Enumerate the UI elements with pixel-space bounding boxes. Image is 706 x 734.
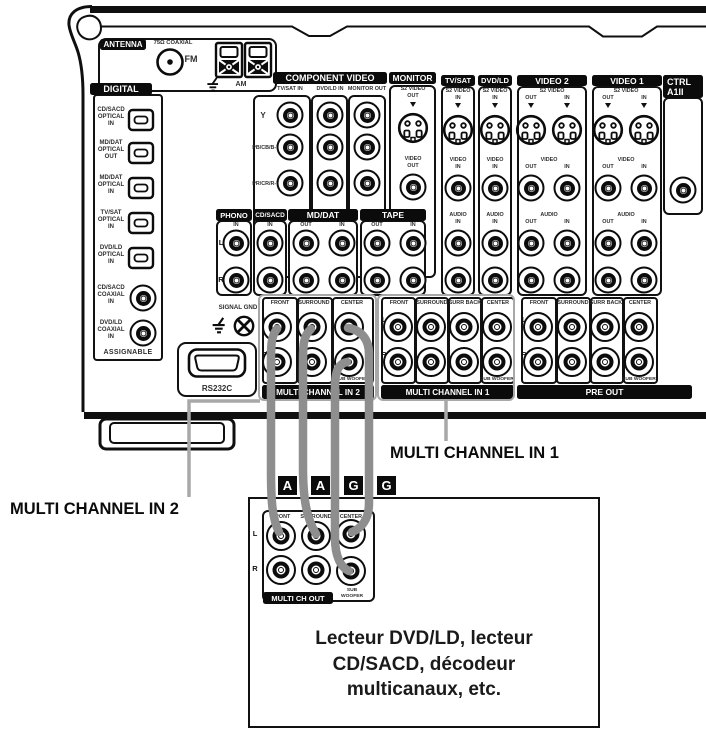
mddat-out-label: OUT <box>300 222 311 229</box>
component-col-header: DVD/LD IN <box>317 86 344 93</box>
dvdld-title: DVD/LD <box>478 75 512 86</box>
s-video-jack-video1-out <box>592 114 624 146</box>
preout-front-label: FRONT <box>530 300 549 307</box>
monitor-video-out-label: OUT <box>407 163 418 170</box>
rear-panel-connection-diagram: ANTENNA 75Ω COAXIAL FM AM DIGITAL CD/SAC… <box>0 0 706 734</box>
ground-icon <box>206 77 221 92</box>
rca-jack-preout-front-l <box>523 312 553 342</box>
video1-s2-label: S2 VIDEO <box>614 88 639 95</box>
video2-video-label: VIDEO <box>541 157 558 164</box>
s-video-jack-monitor-out <box>397 112 429 144</box>
rca-jack-dvdld-audio-l <box>482 230 509 257</box>
optical-jack-tvsat-in <box>127 176 155 200</box>
antenna-title: ANTENNA <box>100 39 146 50</box>
rca-jack-dvdld-audio-r <box>482 267 509 294</box>
dvdld-video-label: VIDEO <box>487 157 504 164</box>
rca-jack-video2-audio-out-r <box>518 267 545 294</box>
rca-jack-component-tvsat-y <box>277 102 304 129</box>
mc2-highlight-box <box>258 294 377 401</box>
rca-jack-phono-l <box>223 230 250 257</box>
tvsat-s2-label: S2 VIDEO <box>446 88 471 95</box>
digital-item-label: COAXIAL <box>98 327 125 334</box>
rca-jack-component-monitor-pr <box>354 170 381 197</box>
am-antenna-terminal-right <box>244 42 272 78</box>
rca-jack-cdsacd-r <box>257 267 284 294</box>
digital-item-label: MD/DAT <box>100 140 123 147</box>
video2-video-in-label: IN <box>564 164 569 171</box>
cdsacd-in-label: IN <box>267 222 272 229</box>
monitor-title: MONITOR <box>389 72 436 84</box>
am-label: AM <box>236 81 247 88</box>
preout-title: PRE OUT <box>517 385 692 399</box>
rca-jack-component-monitor-y <box>354 102 381 129</box>
digital-item-label: IN <box>108 189 114 196</box>
rca-jack-tape-in-r <box>400 267 427 294</box>
phono-title: PHONO <box>216 209 252 221</box>
dvdld-s2-in-label: IN <box>492 95 497 102</box>
device-woofer-label: WOOFER <box>341 593 363 600</box>
rca-jack-video1-video-in <box>631 175 658 202</box>
rca-jack-video1-audio-in-l <box>631 230 658 257</box>
mddat-in-label: IN <box>339 222 344 229</box>
row-label-r: R <box>252 564 257 573</box>
s-video-jack-video2-in <box>551 114 583 146</box>
device-caption-line2: CD/SACD, décodeur <box>252 652 596 678</box>
s-video-jack-dvdld-in <box>479 114 511 146</box>
rca-jack-device-center <box>336 519 366 549</box>
rca-jack-video2-video-in <box>554 175 581 202</box>
digital-item-label: IN <box>108 121 114 128</box>
rca-jack-digital-cdsacd-coaxial <box>130 285 157 312</box>
digital-item-label: DVD/LD <box>100 245 122 252</box>
device-caption-line1: Lecteur DVD/LD, lecteur <box>252 626 596 652</box>
dvdld-video-in-label: IN <box>492 164 497 171</box>
fm-label: FM <box>185 56 198 63</box>
rca-jack-preout-surrback-r <box>590 347 620 377</box>
row-label-l: L <box>253 529 258 538</box>
component-video-title: COMPONENT VIDEO <box>273 72 387 84</box>
digital-item-label: OPTICAL <box>98 217 124 224</box>
preout-subwoofer-label: SUB WOOFER <box>622 376 656 383</box>
video2-s2-in-label: IN <box>564 95 569 102</box>
monitor-video-label: VIDEO <box>405 156 422 163</box>
rca-jack-mddat-in-r <box>329 267 356 294</box>
rs232c-label: RS232C <box>202 385 232 392</box>
digital-item-label: DVD/LD <box>100 320 122 327</box>
down-arrow-icon <box>492 103 498 108</box>
cable-badge-a2: A <box>311 476 330 495</box>
digital-item-label: CD/SACD <box>97 285 124 292</box>
down-arrow-icon <box>641 103 647 108</box>
rca-jack-component-dvdld-pr <box>317 170 344 197</box>
rca-jack-component-dvdld-y <box>317 102 344 129</box>
device-caption-line3: multicanaux, etc. <box>252 677 596 703</box>
rca-jack-device-surround-r <box>301 555 331 585</box>
fm-antenna-jack <box>155 47 185 77</box>
rca-jack-tape-out-r <box>364 267 391 294</box>
signal-gnd-label: SIGNAL GND <box>219 304 258 311</box>
cable-badge-g2: G <box>377 476 396 495</box>
ground-screw-icon <box>233 315 256 338</box>
rca-jack-tvsat-video-in <box>445 175 472 202</box>
digital-item-label: IN <box>108 334 114 341</box>
mc1-highlight-box <box>377 294 515 401</box>
digital-item-label: IN <box>108 224 114 231</box>
am-antenna-terminal-left <box>215 42 243 78</box>
video2-audio-in-label: IN <box>564 219 569 226</box>
cable-badge-a1: A <box>278 476 297 495</box>
tvsat-audio-in-label: IN <box>455 219 460 226</box>
phono-in-label: IN <box>233 222 238 229</box>
digital-title: DIGITAL <box>90 83 152 95</box>
video1-audio-label: AUDIO <box>617 212 634 219</box>
assignable-label: ASSIGNABLE <box>104 349 153 356</box>
s-video-jack-video2-out <box>515 114 547 146</box>
rca-jack-mddat-out-l <box>293 230 320 257</box>
tvsat-video-in-label: IN <box>455 164 460 171</box>
rca-jack-video2-video-out <box>518 175 545 202</box>
down-arrow-icon <box>528 103 534 108</box>
down-arrow-icon <box>605 103 611 108</box>
tape-in-label: IN <box>410 222 415 229</box>
cdsacd-title: CD/SACD <box>253 209 287 221</box>
rca-jack-preout-center <box>624 312 654 342</box>
optical-jack-cdsacd-in <box>127 108 155 132</box>
s-video-jack-video1-in <box>628 114 660 146</box>
dvdld-audio-label: AUDIO <box>486 212 503 219</box>
video1-audio-out-label: OUT <box>602 219 613 226</box>
rca-jack-device-surround-l <box>301 521 331 551</box>
digital-item-label: OPTICAL <box>98 182 124 189</box>
rca-jack-dvdld-video-in <box>482 175 509 202</box>
digital-item-label: OUT <box>105 154 118 161</box>
rca-jack-component-tvsat-pr <box>277 170 304 197</box>
device-multi-ch-out-title: MULTI CH OUT <box>263 592 333 604</box>
rca-jack-mddat-in-l <box>329 230 356 257</box>
video1-audio-in-label: IN <box>641 219 646 226</box>
rca-jack-preout-front-r <box>523 347 553 377</box>
ctrl-a1-title: CTRL A1II <box>663 75 703 98</box>
video1-s2-out-label: OUT <box>602 95 613 102</box>
video2-s2-out-label: OUT <box>525 95 536 102</box>
rca-jack-monitor-video-out <box>400 174 427 201</box>
ctrl-line1: CTRL <box>667 77 691 87</box>
digital-item-label: COAXIAL <box>98 292 125 299</box>
rca-jack-phono-r <box>223 267 250 294</box>
rca-jack-tvsat-audio-l <box>445 230 472 257</box>
component-col-header: TV/SAT IN <box>277 86 303 93</box>
antenna-coaxial-label: 75Ω COAXIAL <box>154 40 193 47</box>
video2-video-out-label: OUT <box>525 164 536 171</box>
digital-item-label: OPTICAL <box>98 114 124 121</box>
cable-badge-g1: G <box>344 476 363 495</box>
preout-surround-label: SURROUND <box>557 300 588 307</box>
video2-audio-label: AUDIO <box>540 212 557 219</box>
video2-audio-out-label: OUT <box>525 219 536 226</box>
rca-jack-preout-surround-r <box>557 347 587 377</box>
video1-title: VIDEO 1 <box>592 75 662 86</box>
rca-jack-video1-audio-out-l <box>595 230 622 257</box>
device-caption: Lecteur DVD/LD, lecteur CD/SACD, décodeu… <box>252 626 596 703</box>
device-front-label: FRONT <box>272 514 291 521</box>
rca-jack-component-dvdld-pb <box>317 134 344 161</box>
dvdld-s2-label: S2 VIDEO <box>483 88 508 95</box>
tvsat-title: TV/SAT <box>441 75 475 86</box>
rca-jack-preout-surround-l <box>557 312 587 342</box>
digital-item-label: IN <box>108 259 114 266</box>
mddat-title: MD/DAT <box>288 209 358 221</box>
optical-jack-mddat-out <box>127 141 155 165</box>
rca-jack-device-front-r <box>266 555 296 585</box>
down-arrow-icon <box>564 103 570 108</box>
preout-center-label: CENTER <box>629 300 651 307</box>
monitor-s2-label: S2 VIDEO <box>401 86 426 93</box>
video1-video-in-label: IN <box>641 164 646 171</box>
rca-jack-cdsacd-l <box>257 230 284 257</box>
digital-item-label: TV/SAT <box>101 210 122 217</box>
preout-surrback-label: SURR BACK <box>590 300 622 307</box>
optical-jack-dvdld-in <box>127 246 155 270</box>
rca-jack-device-front-l <box>266 521 296 551</box>
down-arrow-icon <box>455 103 461 108</box>
monitor-s2-out-label: OUT <box>407 93 418 100</box>
digital-item-label: OPTICAL <box>98 147 124 154</box>
component-col-header: MONITOR OUT <box>348 86 386 93</box>
digital-item-label: MD/DAT <box>100 175 123 182</box>
digital-item-label: OPTICAL <box>98 252 124 259</box>
callout-multi-channel-in-2: MULTI CHANNEL IN 2 <box>10 500 179 519</box>
s-video-jack-tvsat-in <box>442 114 474 146</box>
rca-jack-component-monitor-pb <box>354 134 381 161</box>
video1-video-out-label: OUT <box>602 164 613 171</box>
rca-jack-video1-video-out <box>595 175 622 202</box>
rca-jack-video2-audio-in-l <box>554 230 581 257</box>
rca-jack-component-tvsat-pb <box>277 134 304 161</box>
rca-jack-video2-audio-in-r <box>554 267 581 294</box>
digital-item-label: IN <box>108 299 114 306</box>
rca-jack-device-subwoofer <box>336 556 366 586</box>
rca-jack-video2-audio-out-l <box>518 230 545 257</box>
rca-jack-video1-audio-in-r <box>631 267 658 294</box>
rca-jack-preout-surrback-l <box>590 312 620 342</box>
video2-s2-label: S2 VIDEO <box>540 88 565 95</box>
callout-multi-channel-in-1: MULTI CHANNEL IN 1 <box>390 444 559 463</box>
video1-video-label: VIDEO <box>618 157 635 164</box>
rca-jack-digital-dvdld-coaxial <box>130 320 157 347</box>
rs232c-connector <box>186 347 248 379</box>
video2-title: VIDEO 2 <box>517 75 587 86</box>
tvsat-audio-label: AUDIO <box>449 212 466 219</box>
optical-jack-tvsat2-in <box>127 211 155 235</box>
ground-icon <box>211 317 228 334</box>
component-row-label-y: Y <box>260 112 265 119</box>
ctrl-line2: A1II <box>667 87 684 97</box>
rca-jack-tvsat-audio-r <box>445 267 472 294</box>
tape-out-label: OUT <box>371 222 382 229</box>
down-arrow-icon <box>410 102 416 107</box>
rca-jack-video1-audio-out-r <box>595 267 622 294</box>
rca-jack-tape-out-l <box>364 230 391 257</box>
rca-jack-preout-subwoofer <box>624 347 654 377</box>
digital-item-label: CD/SACD <box>97 107 124 114</box>
device-surround-label: SURROUND <box>300 514 331 521</box>
rca-jack-ctrl-a1 <box>670 177 697 204</box>
rca-jack-tape-in-l <box>400 230 427 257</box>
dvdld-audio-in-label: IN <box>492 219 497 226</box>
tape-title: TAPE <box>360 209 426 221</box>
tvsat-s2-in-label: IN <box>455 95 460 102</box>
tvsat-video-label: VIDEO <box>450 157 467 164</box>
rca-jack-mddat-out-r <box>293 267 320 294</box>
mc2-callout-line <box>189 401 260 497</box>
video1-s2-in-label: IN <box>641 95 646 102</box>
